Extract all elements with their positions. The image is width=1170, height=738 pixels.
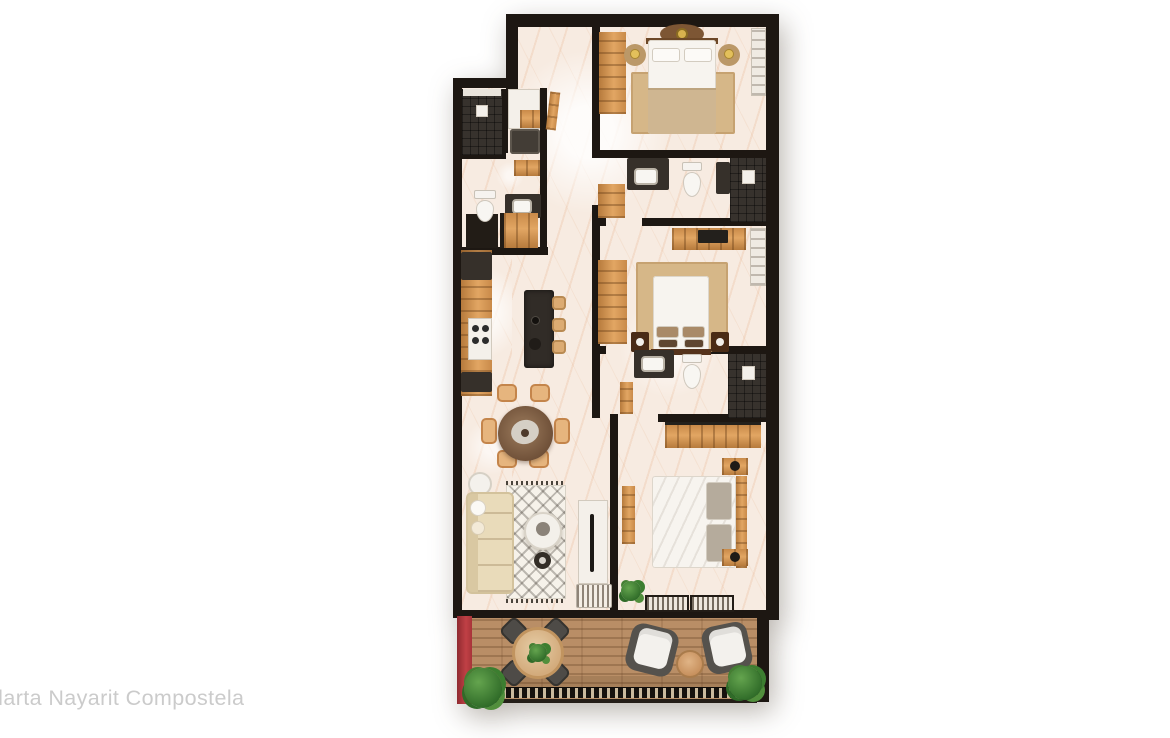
masterbath-shower xyxy=(730,158,766,222)
bedroom2-cushion-left xyxy=(658,339,678,348)
terrace-railing xyxy=(490,687,746,698)
burner-2 xyxy=(482,325,489,332)
bedroom2-pillow-left xyxy=(656,326,679,338)
dining-centerpiece xyxy=(521,429,529,437)
sofa-throw-pillow-1 xyxy=(470,500,486,516)
masterbath-side-cabinet xyxy=(716,162,730,194)
dining-chair-1 xyxy=(497,384,517,402)
utility-sink xyxy=(512,199,532,214)
bedroom2-lamp-left xyxy=(636,338,644,346)
kitchen-island xyxy=(524,290,554,368)
dining-chair-4 xyxy=(554,418,570,444)
bedroom3-lamp-top xyxy=(730,461,740,471)
wall-block-right xyxy=(540,88,547,250)
utility-washer xyxy=(510,129,540,154)
wall-right xyxy=(766,14,779,620)
terrace-plant-right xyxy=(728,666,762,700)
bedroom3-sliding-door-left xyxy=(645,595,689,612)
bar-stool-1 xyxy=(552,296,566,310)
wall-masterbath-top xyxy=(592,150,779,158)
bathroom2-shower-head xyxy=(742,366,755,380)
burner-1 xyxy=(472,325,479,332)
bedroom3-pillow-top xyxy=(706,482,732,520)
dining-chair-3 xyxy=(481,418,497,444)
wall-top xyxy=(506,14,779,27)
masterbath-cabinet xyxy=(598,184,625,218)
entry-closet xyxy=(500,213,538,248)
coffee-table-tray xyxy=(536,522,550,536)
bedroom3-lamp-bottom xyxy=(730,552,740,562)
bar-stool-3 xyxy=(552,340,566,354)
kitchen-counter-dark-upper xyxy=(461,252,492,280)
living-curtain xyxy=(576,584,612,608)
hall-ladder-shelf xyxy=(620,382,633,414)
terrace-bottom-edge xyxy=(461,699,757,703)
bathroom2-shower xyxy=(728,354,766,418)
utility-wood-shelf xyxy=(514,160,540,176)
apartment-floor-plan xyxy=(0,0,1170,738)
floor-plan-canvas: llarta Nayarit Compostela xyxy=(0,0,1170,738)
bedroom3-plant xyxy=(621,581,641,601)
kitchen-cooktop xyxy=(468,318,492,360)
utility-shower-head xyxy=(476,105,488,117)
wall-block-top xyxy=(453,78,513,88)
utility-toilet-tank xyxy=(474,190,496,199)
utility-shower-ledge xyxy=(463,89,501,96)
bedroom2-tv xyxy=(698,230,728,243)
master-lamp-right xyxy=(724,49,734,59)
bedroom2-cushion-right xyxy=(684,339,704,348)
bathroom2-toilet-tank xyxy=(682,354,702,363)
terrace-side-table xyxy=(676,650,704,678)
masterbath-toilet-tank xyxy=(682,162,702,171)
bedroom3-sliding-door-right xyxy=(690,595,734,612)
sofa-throw-pillow-2 xyxy=(471,521,485,535)
bedroom2-closet xyxy=(750,228,766,286)
burner-4 xyxy=(482,337,489,344)
island-sink-dot xyxy=(529,338,541,350)
master-wardrobe xyxy=(599,32,626,114)
wall-bathroom2-top-left xyxy=(592,346,606,354)
island-faucet xyxy=(531,316,540,325)
terrace-plant-left xyxy=(464,668,502,708)
living-ottoman-top xyxy=(539,557,546,564)
master-closet xyxy=(751,28,766,96)
masterbath-shower-head xyxy=(742,170,755,184)
kitchen-counter-dark-lower xyxy=(461,372,492,392)
terrace-table-plant xyxy=(529,644,547,662)
master-pillow-right xyxy=(684,48,712,62)
bar-stool-2 xyxy=(552,318,566,332)
bedroom2-wardrobe xyxy=(598,260,627,344)
burner-3 xyxy=(472,337,479,344)
wall-bedroom2-top-left xyxy=(592,218,606,226)
master-lamp-left xyxy=(630,49,640,59)
master-blanket xyxy=(648,88,716,134)
dining-chair-2 xyxy=(530,384,550,402)
bedroom3-bench xyxy=(622,486,635,544)
tv-screen xyxy=(590,514,594,572)
bathroom2-sink xyxy=(641,356,665,372)
bedroom2-lamp-right xyxy=(716,338,724,346)
watermark-text: llarta Nayarit Compostela xyxy=(0,686,244,711)
masterbath-sink xyxy=(634,168,658,185)
master-pillow-left xyxy=(652,48,680,62)
bedroom2-pillow-right xyxy=(682,326,705,338)
utility-shower xyxy=(462,89,502,155)
bedroom3-closet xyxy=(665,422,761,448)
living-rug-fringe-bottom xyxy=(506,599,566,603)
utility-counter-shelf xyxy=(520,110,540,128)
